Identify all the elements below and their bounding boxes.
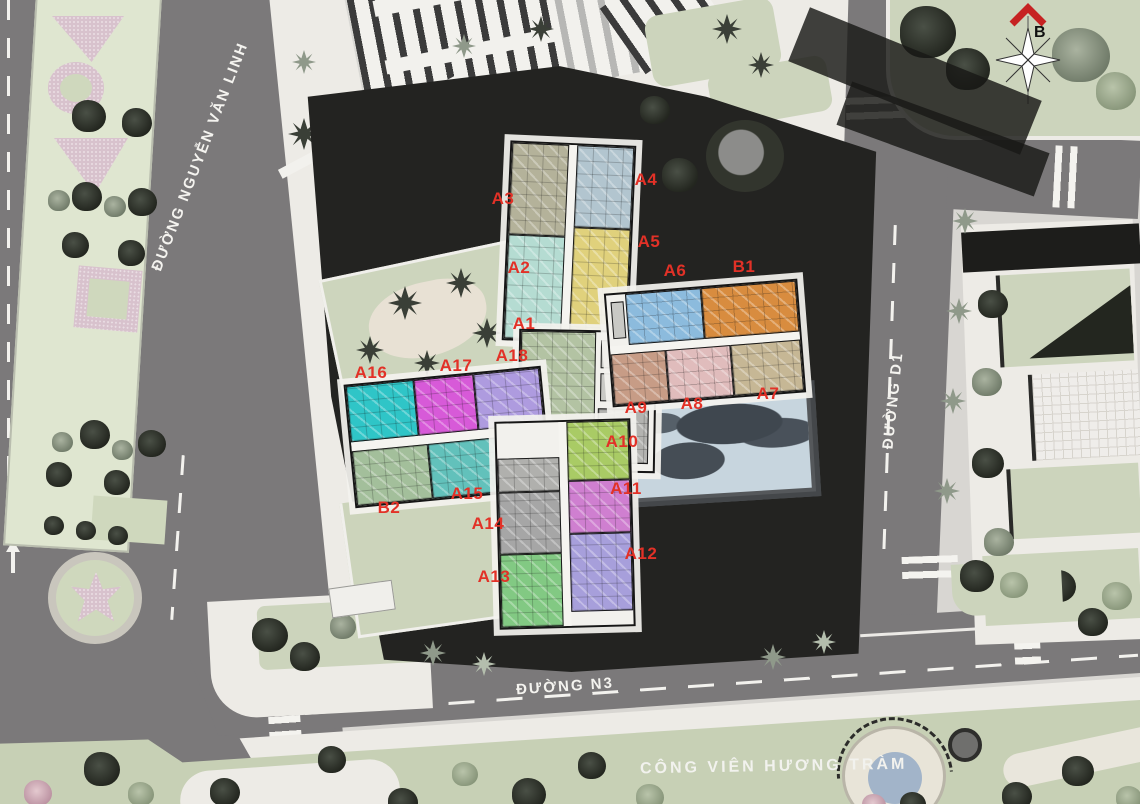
unit-label-a2: A2 <box>508 258 531 278</box>
unit-label-a14: A14 <box>472 514 505 534</box>
unit-label-a6: A6 <box>664 261 687 281</box>
unit-label-a3: A3 <box>492 189 515 209</box>
unit-label-a5: A5 <box>638 232 661 252</box>
unit-label-a15: A15 <box>451 484 484 504</box>
unit-label-a10: A10 <box>606 432 639 452</box>
unit-label-a12: A12 <box>625 544 658 564</box>
unit-label-b2: B2 <box>378 498 401 518</box>
unit-label-a13: A13 <box>478 567 511 587</box>
unit-label-a4: A4 <box>635 170 658 190</box>
unit-label-a7: A7 <box>757 384 780 404</box>
unit-label-b1: B1 <box>733 257 756 277</box>
unit-label-a18: A18 <box>496 346 529 366</box>
unit-label-a11: A11 <box>610 479 642 499</box>
unit-label-a1: A1 <box>513 314 536 334</box>
site-plan-map: ĐƯỜNG NGUYỄN VĂN LINH ĐƯỜNG D1 ĐƯỜNG N3 … <box>0 0 1140 804</box>
unit-label-a8: A8 <box>681 394 704 414</box>
unit-label-a16: A16 <box>355 363 388 383</box>
unit-label-a17: A17 <box>440 356 473 376</box>
unit-labels-layer: A1A2A3A4A5A6B1A7A8A9A10A11A12A13A14A15A1… <box>0 0 1140 804</box>
unit-label-a9: A9 <box>625 398 648 418</box>
